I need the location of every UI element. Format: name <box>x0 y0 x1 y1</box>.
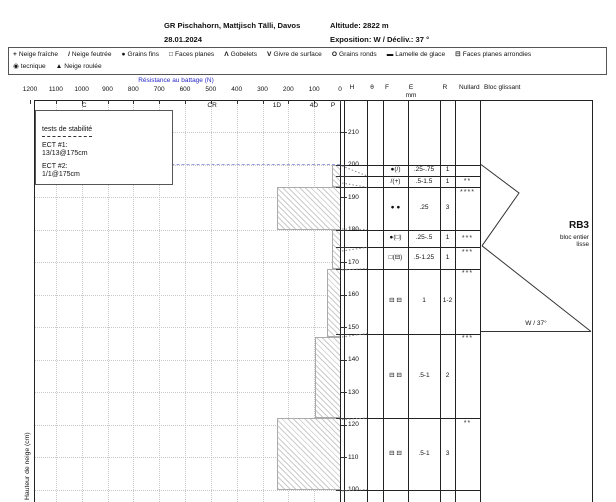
depth-tick <box>341 425 347 426</box>
rutschblock-sketch <box>481 165 591 332</box>
stability-test-result: 1/1@175cm <box>42 171 172 179</box>
axis-tick-label: 0 <box>325 86 355 93</box>
grain-form-cell: /(+) <box>383 178 408 186</box>
depth-tick <box>341 360 347 361</box>
grain-symbol: + <box>13 49 17 61</box>
depth-tick <box>341 132 347 133</box>
grain-size-cell: .5-1 <box>408 372 440 380</box>
grain-form-cell: ●(□) <box>383 234 408 242</box>
depth-tick-label: 210 <box>348 129 359 136</box>
gridline <box>185 100 186 502</box>
depth-tick-label: 140 <box>348 356 359 363</box>
stability-tests-box: tests de stabilité ECT #1:13/13@175cmECT… <box>35 110 173 185</box>
grain-symbol: ⊟ <box>455 49 461 61</box>
layer-boundary-line <box>344 490 480 491</box>
col-header-bloc-glissant: Bloc glissant <box>484 84 521 91</box>
altitude-label: Altitude: 2822 m <box>330 22 389 29</box>
legend-item-label: Grains ronds <box>339 49 377 61</box>
stability-test: ECT #2:1/1@175cm <box>42 163 172 179</box>
legend-item: +Neige fraîche <box>13 49 58 61</box>
depth-tick-label: 180 <box>348 226 359 233</box>
grain-symbol: Λ <box>224 49 228 61</box>
layer-boundary-tick <box>336 176 350 177</box>
depth-axis-line <box>340 100 341 502</box>
page-title: GR Pischahorn, Mattjisch Tälli, Davos <box>164 22 300 29</box>
axis-tick <box>30 100 31 104</box>
grain-form-cell: ⊟ ⊟ <box>383 450 408 458</box>
col-header-f: F <box>379 84 395 91</box>
hardness-cell: 1 <box>440 234 455 242</box>
gridline <box>34 490 340 491</box>
legend-item-label: Givre de surface <box>273 49 321 61</box>
hardness-cell: 2 <box>440 372 455 380</box>
layer-boundary-tick <box>336 269 350 270</box>
legend-item-label: Neige feutrée <box>72 49 112 61</box>
axis-tick <box>185 100 186 104</box>
grain-size-cell: .5-1.5 <box>408 178 440 186</box>
frame-top-border <box>34 100 592 101</box>
axis-tick <box>288 100 289 104</box>
depth-tick-label: 120 <box>348 421 359 428</box>
x-axis-title: Résistance au battage (N) <box>76 77 276 84</box>
hardness-cell: 1 <box>440 254 455 262</box>
hardness-cell: 3 <box>440 204 455 212</box>
table-left-border <box>344 100 345 502</box>
grain-size-cell: .5-1.25 <box>408 254 440 262</box>
legend-item-label: Lamelle de glace <box>395 49 445 61</box>
legend-item: OGrains ronds <box>332 49 377 61</box>
resistance-bar <box>277 187 340 229</box>
column-line-r <box>455 100 456 502</box>
legend-item-label: Neige fraîche <box>19 49 58 61</box>
depth-tick-label: 100 <box>348 486 359 493</box>
legend-item-label: tecnique <box>21 61 46 73</box>
depth-tick-label: 200 <box>348 161 359 168</box>
grain-form-cell: ⊟ ⊟ <box>383 372 408 380</box>
grain-size-cell: .5-1 <box>408 450 440 458</box>
date-label: 28.01.2024 <box>164 36 202 43</box>
legend-item: ◉tecnique <box>13 61 46 73</box>
hardness-cell: 1 <box>440 178 455 186</box>
layer-boundary-tick <box>336 334 350 335</box>
legend-item-label: Faces planes arrondies <box>463 49 532 61</box>
axis-tick <box>237 100 238 104</box>
legend-item-label: Faces planes <box>175 49 214 61</box>
resistance-bar <box>327 269 340 337</box>
grain-form-cell: ⊟ ⊟ <box>383 297 408 305</box>
legend-item: VGivre de surface <box>267 49 322 61</box>
legend-item-label: Grains fins <box>128 49 160 61</box>
col-header-theta: θ <box>364 84 380 91</box>
depth-tick <box>341 262 347 263</box>
gridline <box>263 100 264 502</box>
resistance-bar <box>277 418 340 490</box>
legend-item-label: Gobelets <box>231 49 257 61</box>
depth-tick <box>341 457 347 458</box>
grain-form-cell: □(⊟) <box>383 254 408 262</box>
weak-layer-stars: ** <box>455 420 480 427</box>
grain-form-cell: ●(/) <box>383 166 408 174</box>
grain-symbol: ▬ <box>387 49 394 61</box>
hardness-scale-label: 4D <box>304 102 324 109</box>
layer-boundary-tick <box>336 247 350 248</box>
grain-size-cell: .25-.75 <box>408 166 440 174</box>
legend-item: ●Grains fins <box>122 49 160 61</box>
grain-symbol: V <box>267 49 271 61</box>
layer-boundary-tick <box>336 187 350 188</box>
legend-row: ◉tecnique▲Neige roulée <box>13 61 602 73</box>
col-header-r: R <box>437 84 453 91</box>
axis-tick <box>133 100 134 104</box>
grain-size-cell: 1 <box>408 297 440 305</box>
grain-symbol: O <box>332 49 337 61</box>
column-line-h <box>367 100 368 502</box>
y-axis-title: Hauteur de neige (cm) <box>24 390 31 500</box>
depth-tick-label: 130 <box>348 389 359 396</box>
weak-layer-stars: ** <box>455 178 480 185</box>
depth-tick-label: 170 <box>348 259 359 266</box>
frame-right-border <box>592 100 593 502</box>
resistance-bar <box>332 230 340 269</box>
depth-tick <box>341 392 347 393</box>
legend-item: ⊟Faces planes arrondies <box>455 49 531 61</box>
weak-layer-stars: *** <box>455 249 480 256</box>
slope-ramp-line <box>482 246 591 332</box>
grain-symbol: / <box>68 49 70 61</box>
gridline <box>34 327 340 328</box>
hardness-scale-label: 1D <box>267 102 287 109</box>
exposition-label: Exposition: W / Décliv.: 37 ° <box>330 36 429 43</box>
gridline <box>34 262 340 263</box>
hardness-cell: 1 <box>440 166 455 174</box>
col-header-e-unit: mm <box>401 92 421 99</box>
legend-item: /Neige feutrée <box>68 49 111 61</box>
rutschblock-desc-2: lisse <box>480 241 589 248</box>
stability-tests-title: tests de stabilité <box>42 126 92 137</box>
col-header-e: E <box>403 84 419 91</box>
grain-legend: +Neige fraîche/Neige feutrée●Grains fins… <box>8 47 607 75</box>
grain-size-cell: .25-.5 <box>408 234 440 242</box>
grain-symbol: ◉ <box>13 61 19 73</box>
resistance-bar <box>315 337 340 418</box>
grain-symbol: □ <box>169 49 173 61</box>
gridline <box>237 100 238 502</box>
depth-tick-label: 110 <box>348 454 358 461</box>
gridline <box>34 392 340 393</box>
grain-symbol: ▲ <box>56 61 63 73</box>
axis-tick <box>263 100 264 104</box>
gridline <box>211 100 212 502</box>
weak-layer-stars: *** <box>455 270 480 277</box>
stability-test-name: ECT #1: <box>42 142 172 150</box>
stability-test: ECT #1:13/13@175cm <box>42 142 172 158</box>
depth-tick <box>341 197 347 198</box>
gridline <box>34 295 340 296</box>
gridline <box>34 230 340 231</box>
rutschblock-result: RB3 <box>480 220 589 231</box>
legend-item: ΛGobelets <box>224 49 257 61</box>
depth-tick-label: 150 <box>348 324 359 331</box>
grain-form-cell: ● ● <box>383 204 408 212</box>
legend-item: ▬Lamelle de glace <box>387 49 445 61</box>
weak-layer-stars: **** <box>455 189 480 196</box>
stability-test-result: 13/13@175cm <box>42 150 172 158</box>
weak-layer-stars: *** <box>455 235 480 242</box>
hardness-cell: 1-2 <box>440 297 455 305</box>
stability-test-name: ECT #2: <box>42 163 172 171</box>
col-header-nullard: Nullard <box>459 84 480 91</box>
depth-tick <box>341 295 347 296</box>
grain-size-cell: .25 <box>408 204 440 212</box>
column-line-nullard <box>480 100 481 502</box>
grain-symbol: ● <box>122 49 126 61</box>
legend-item: □Faces planes <box>169 49 214 61</box>
weak-layer-stars: *** <box>455 335 480 342</box>
depth-tick-label: 190 <box>348 194 359 201</box>
hardness-scale-label: C <box>74 102 94 109</box>
layer-boundary-tick <box>336 418 350 419</box>
layer-boundary-line <box>344 230 480 231</box>
slope-angle-label: W / 37° <box>481 320 591 327</box>
depth-tick <box>341 327 347 328</box>
rutschblock-desc-1: bloc entier <box>480 234 589 241</box>
legend-row: +Neige fraîche/Neige feutrée●Grains fins… <box>13 49 602 61</box>
axis-tick <box>56 100 57 104</box>
hardness-cell: 3 <box>440 450 455 458</box>
gridline <box>34 360 340 361</box>
hardness-scale-label: CR <box>202 102 222 109</box>
axis-tick <box>108 100 109 104</box>
snow-profile-report: GR Pischahorn, Mattjisch Tälli, Davos Al… <box>0 0 616 502</box>
hardness-scale-label: P <box>323 102 343 109</box>
axis-tick <box>159 100 160 104</box>
legend-item: ▲Neige roulée <box>56 61 102 73</box>
legend-item-label: Neige roulée <box>64 61 101 73</box>
depth-tick-label: 160 <box>348 291 359 298</box>
